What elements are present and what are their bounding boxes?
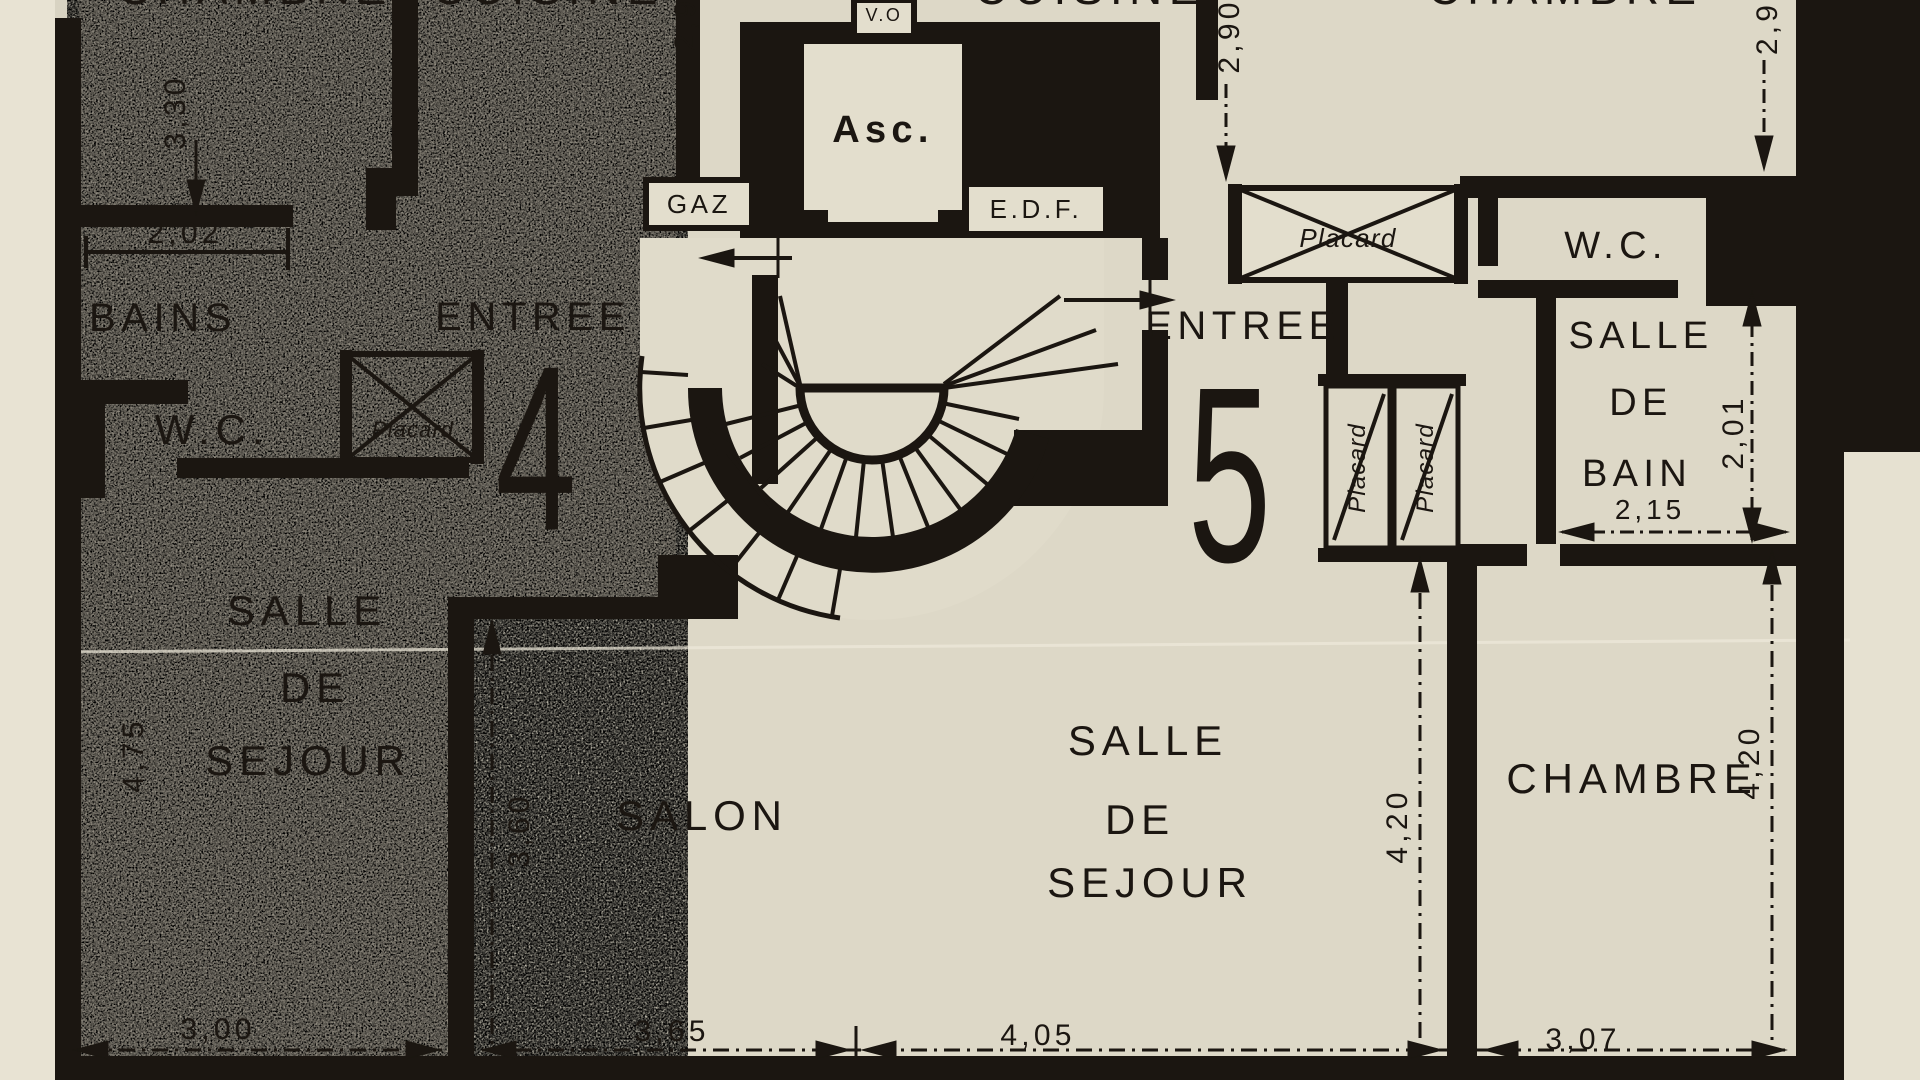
elevator-label: Asc. (832, 111, 934, 149)
floorplan-drawing (0, 0, 1920, 1080)
dim-sejour-5-width: 4,05 (1000, 1021, 1075, 1051)
dim-chambre-5-width: 3,07 (1545, 1025, 1620, 1055)
dim-bain-width: 2,15 (1615, 496, 1685, 524)
room-label-chambre-4: CHAMBRE (117, 0, 392, 11)
room-label-chambre-5: CHAMBRE (1506, 758, 1757, 800)
room-label-bain-l2: DE (1609, 384, 1672, 422)
room-label-sejour-4-l1: SALLE (227, 590, 387, 632)
dim-sejour-4-height: 4,75 (119, 717, 149, 792)
floor-plan-scan: Asc. GAZ E.D.F. V.O CHAMBRE CUISINE 3,30… (0, 0, 1920, 1080)
room-label-sejour-5-l3: SEJOUR (1047, 862, 1253, 904)
placard-right-label-5: Placard (1414, 423, 1438, 513)
placard-left-label-5: Placard (1346, 423, 1370, 513)
dim-bain-height: 2,01 (1719, 394, 1749, 469)
room-label-chambre-5-top: CHAMBRE (1427, 0, 1702, 11)
placard-label-4: Placard (372, 419, 454, 441)
room-label-wc-5: W.C. (1564, 227, 1668, 265)
room-label-sejour-5-l2: DE (1105, 799, 1175, 841)
dim-salon-width: 3,65 (634, 1017, 709, 1047)
room-label-cuisine-5: CUISINE (974, 0, 1206, 11)
garbage-chute-label: V.O (866, 6, 903, 24)
placard-hall-label-5: Placard (1299, 225, 1396, 251)
apartment-number-5: 5 (1188, 350, 1292, 600)
room-label-sejour-5-l1: SALLE (1068, 720, 1228, 762)
room-label-sejour-4-l3: SEJOUR (205, 740, 411, 782)
dim-chambre-5-height: 4,20 (1735, 724, 1765, 799)
room-label-sejour-4-l2: DE (280, 667, 350, 709)
room-label-cuisine-4: CUISINE (432, 0, 664, 11)
room-label-salon: SALON (616, 795, 788, 837)
dim-chambre-5-top-height: 2,9 (1753, 1, 1783, 55)
room-label-wc-4: W.C. (155, 409, 270, 451)
gas-meter-label: GAZ (667, 191, 731, 217)
dim-salon-height: 3,60 (505, 792, 535, 867)
dim-bains-width: 2,02 (147, 219, 222, 249)
dim-chambre-4-height: 3,30 (161, 74, 191, 149)
dim-cuisine-5-height: 2,90 (1215, 0, 1245, 74)
room-label-bain-l3: BAIN (1582, 455, 1692, 493)
room-label-bain-l1: SALLE (1569, 317, 1714, 355)
room-label-bains: BAINS (89, 298, 237, 338)
electric-meter-label: E.D.F. (990, 196, 1083, 222)
apartment-number-4: 4 (495, 331, 596, 566)
dim-sejour-4-width: 3,00 (180, 1015, 255, 1045)
dim-sejour-5-height: 4,20 (1383, 788, 1413, 863)
dim-cuisine-4-height: 2,9 (671, 0, 701, 51)
